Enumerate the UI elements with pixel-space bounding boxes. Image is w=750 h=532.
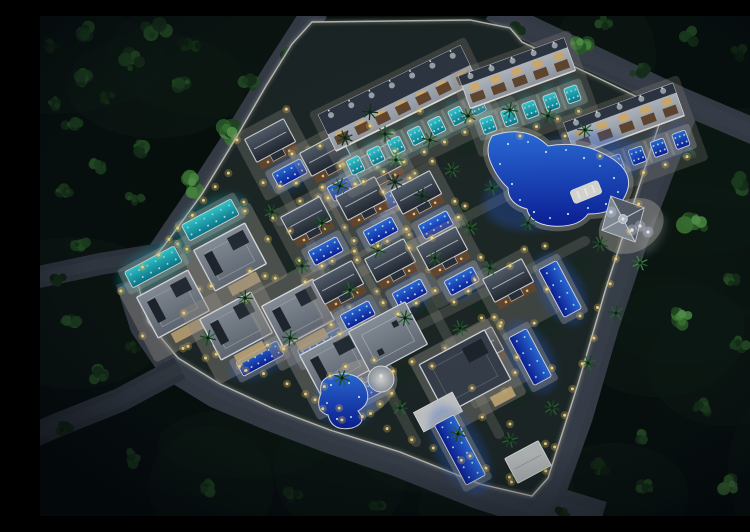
night-vignette (40, 16, 750, 516)
scene-svg (40, 16, 750, 516)
aerial-night-render (40, 16, 750, 516)
